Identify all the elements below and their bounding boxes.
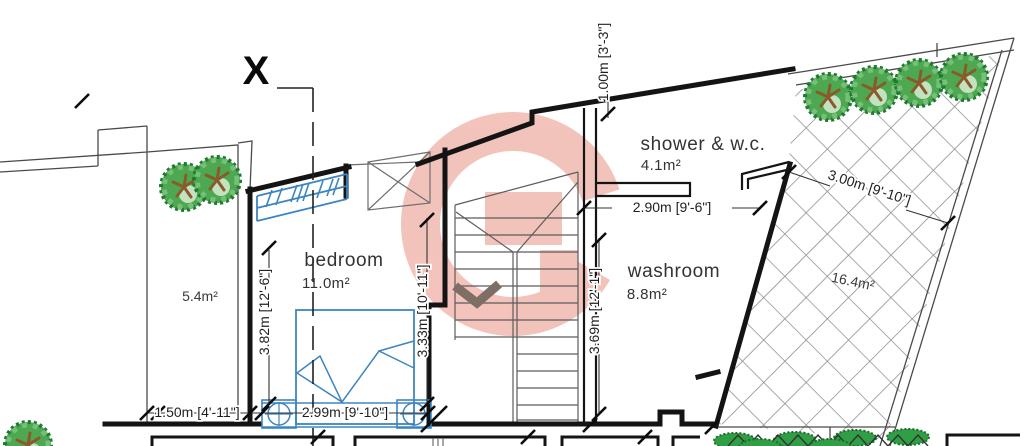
floor-plan-page: X — [0, 0, 1024, 446]
terrace-area-left: 5.4m² — [182, 288, 218, 304]
room-area-bedroom: 11.0m² — [302, 275, 350, 292]
dim-planter-width: 1.50m [4'-11"] — [154, 404, 239, 420]
room-area-washroom: 8.8m² — [627, 286, 667, 303]
dim-bedroom-window-width: 2.99m [9'-10"] — [302, 404, 388, 420]
tree-icon — [805, 74, 851, 120]
tree-icon — [194, 157, 240, 203]
room-label-washroom: washroom — [627, 261, 720, 282]
dim-washroom-depth: 3.69m [12'-1"] — [586, 268, 602, 354]
tree-icon — [851, 67, 897, 113]
room-label-shower: shower & w.c. — [640, 134, 765, 155]
dim-stair-offset: 1.00m [3'-3"] — [595, 23, 611, 101]
dim-bedroom-depth-right: 3.33m [10'-11"] — [414, 265, 430, 358]
room-label-bedroom: bedroom — [304, 250, 383, 271]
tree-icon — [896, 60, 942, 106]
room-area-shower: 4.1m² — [641, 157, 681, 174]
floor-plan-canvas: X — [0, 0, 1024, 446]
section-label: X — [243, 49, 270, 93]
dim-bedroom-depth-left: 3.82m [12'-6"] — [256, 269, 272, 355]
tree-icon — [941, 54, 987, 100]
dim-shower-width: 2.90m [9'-6"] — [633, 199, 711, 215]
shrub-icon — [887, 429, 929, 445]
